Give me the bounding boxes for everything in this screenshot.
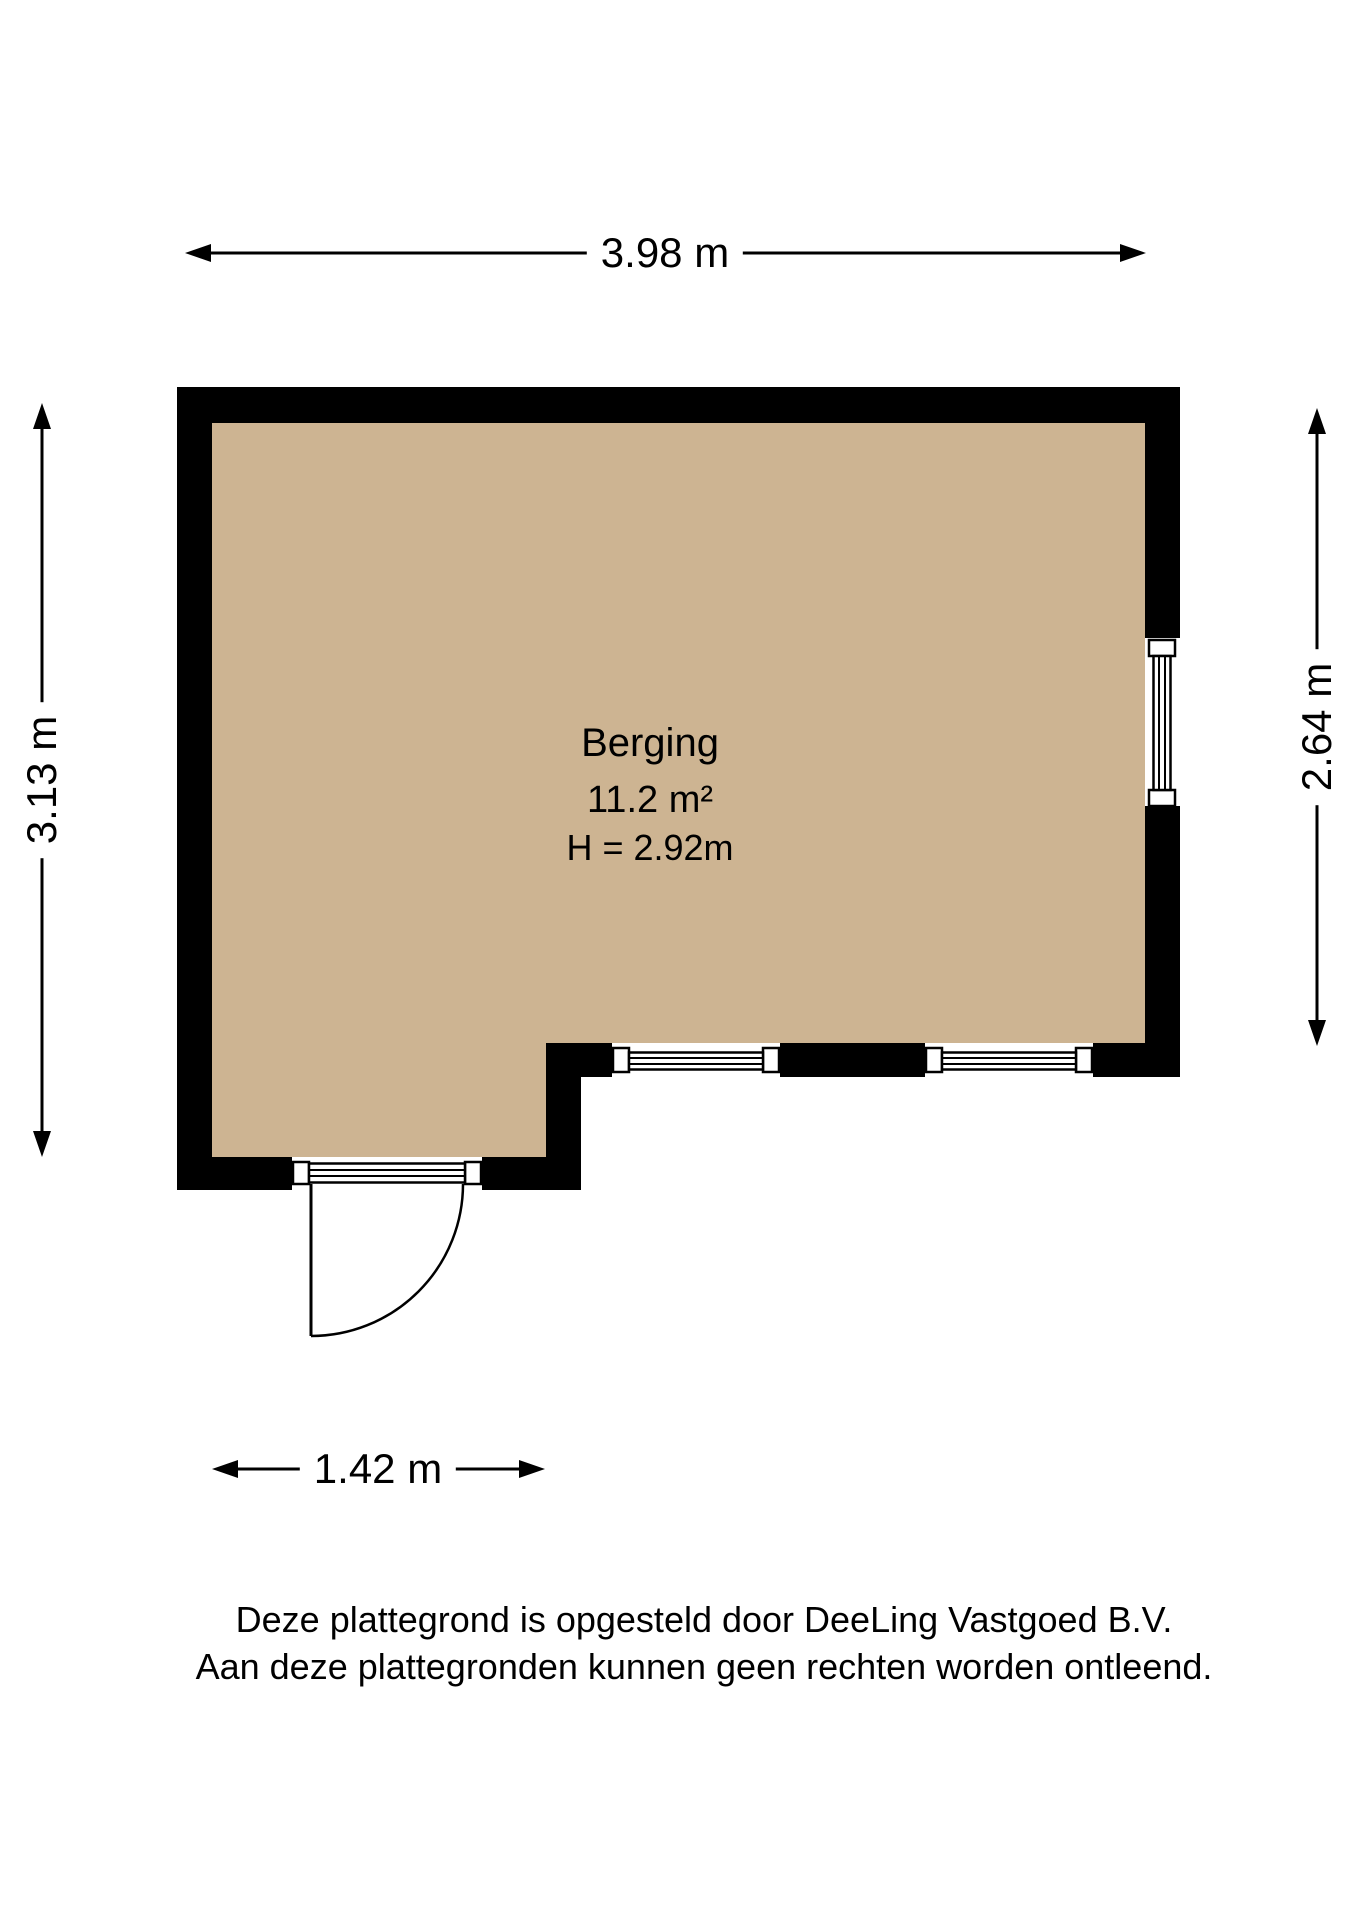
wall-top: [177, 387, 1180, 423]
arrowhead-down-icon: [1308, 1020, 1326, 1046]
dimension-label-right: 2.64 m: [1294, 649, 1340, 805]
window-bottom-1-jamb-right: [763, 1048, 779, 1072]
window-right-glass: [1154, 656, 1171, 790]
window-right: [1145, 638, 1180, 806]
arrowhead-right-icon: [519, 1460, 545, 1478]
window-bottom-2-jamb-left: [926, 1048, 942, 1072]
window-bottom-1: [612, 1043, 780, 1077]
footer-line-2: Aan deze plattegronden kunnen geen recht…: [196, 1643, 1213, 1690]
arrowhead-right-icon: [1120, 244, 1146, 262]
arrowhead-left-icon: [185, 244, 211, 262]
window-right-jamb-bottom: [1149, 790, 1175, 806]
footer-disclaimer: Deze plattegrond is opgesteld door DeeLi…: [196, 1596, 1213, 1690]
window-bottom-1-jamb-left: [613, 1048, 629, 1072]
wall-left: [177, 387, 212, 1190]
window-right-jamb-top: [1149, 640, 1175, 656]
door-jamb-right: [465, 1162, 481, 1184]
door-threshold: [309, 1164, 465, 1183]
door-swing-arc: [311, 1184, 463, 1336]
window-bottom-2-jamb-right: [1076, 1048, 1092, 1072]
arrowhead-up-icon: [1308, 408, 1326, 434]
dimension-label-top: 3.98 m: [587, 230, 743, 276]
dimension-label-bottom: 1.42 m: [300, 1446, 456, 1492]
window-bottom-2: [925, 1043, 1093, 1077]
room-name: Berging: [581, 723, 719, 763]
room-area: 11.2 m²: [587, 781, 713, 819]
door: [292, 1157, 482, 1336]
door-jamb-left: [293, 1162, 309, 1184]
arrowhead-up-icon: [33, 403, 51, 429]
window-bottom-2-glass: [942, 1053, 1076, 1070]
floorplan-page: 3.98 m 3.13 m 2.64 m 1.42 m Berging 11.2…: [0, 0, 1358, 1920]
arrowhead-down-icon: [33, 1131, 51, 1157]
dimension-label-left: 3.13 m: [19, 702, 65, 858]
footer-line-1: Deze plattegrond is opgesteld door DeeLi…: [196, 1596, 1213, 1643]
room-ceiling-height: H = 2.92m: [566, 830, 733, 866]
window-bottom-1-glass: [629, 1053, 763, 1070]
arrowhead-left-icon: [212, 1460, 238, 1478]
